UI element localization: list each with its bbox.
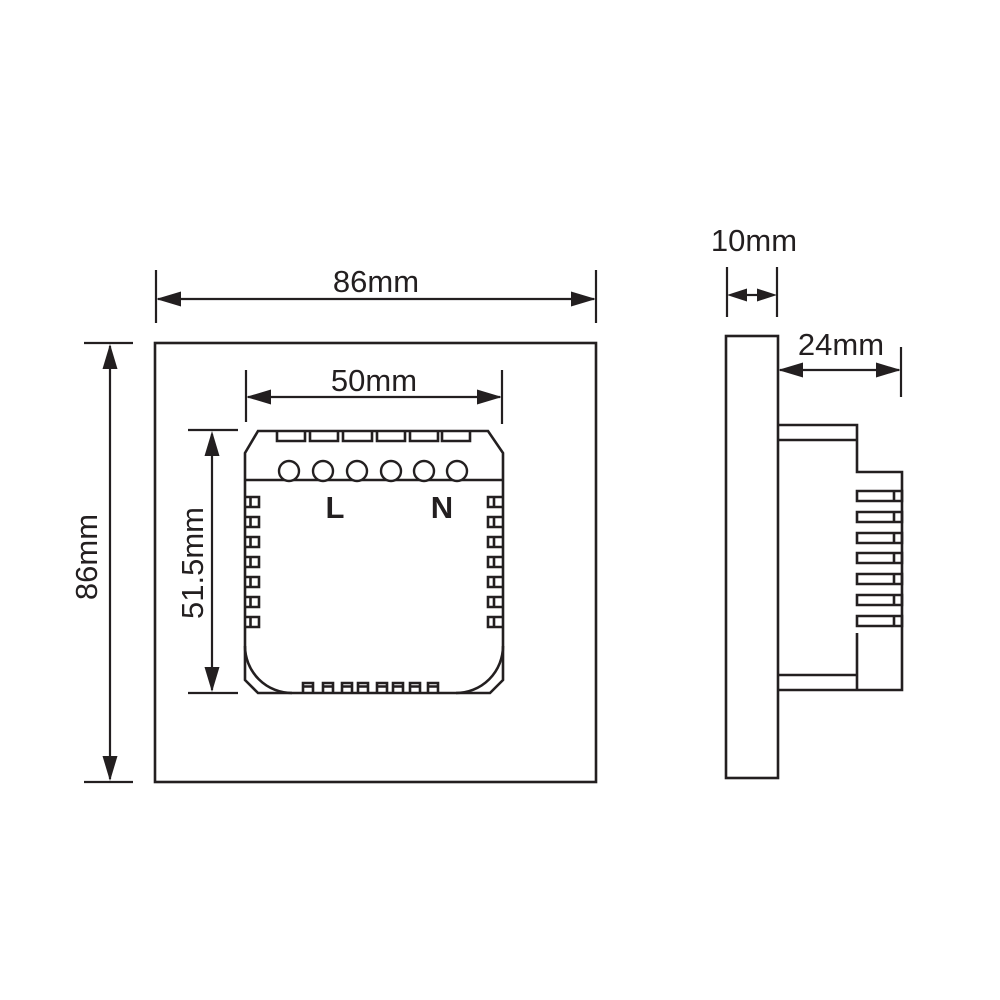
arrow-left-icon (727, 289, 747, 302)
module-height-label: 51.5mm (175, 507, 210, 619)
terminal-screw (279, 461, 299, 481)
arrow-right-icon (757, 289, 777, 302)
width-dimension-label: 86mm (333, 264, 419, 299)
dimension-module-height-51.5mm: 51.5mm (175, 430, 238, 693)
arrow-left-icon (156, 292, 181, 307)
side-view: 10mm 24mm (711, 223, 902, 778)
terminal-live-label: L (326, 490, 345, 525)
terminal-screw (313, 461, 333, 481)
left-claw-slots (245, 497, 259, 627)
front-plate-outline (155, 343, 596, 782)
terminal-neutral-label: N (431, 490, 453, 525)
module-depth-label: 24mm (798, 327, 884, 362)
module-width-label: 50mm (331, 363, 417, 398)
terminal-screws (279, 461, 467, 481)
wall-switch-dimension-drawing: 86mm 86mm 50mm (0, 0, 1000, 1000)
terminal-screw (381, 461, 401, 481)
height-dimension-label: 86mm (69, 514, 104, 600)
arrow-up-icon (205, 431, 220, 456)
terminal-screw (447, 461, 467, 481)
arrow-down-icon (205, 667, 220, 692)
right-claw-slots (488, 497, 503, 627)
dimension-height-86mm: 86mm (69, 343, 133, 782)
module-side-outline (778, 425, 902, 690)
arrow-right-icon (876, 363, 901, 378)
dimension-diagram: 86mm 86mm 50mm (0, 0, 1000, 1000)
top-clip-slots (277, 431, 470, 441)
dimension-depth-24mm: 24mm (778, 327, 901, 397)
terminal-screw (347, 461, 367, 481)
switch-module-side (778, 425, 902, 690)
dimension-thickness-10mm: 10mm (711, 223, 797, 317)
front-view: 86mm 86mm 50mm (69, 264, 596, 782)
bottom-corner-arcs (245, 646, 503, 693)
arrow-right-icon (477, 390, 502, 405)
side-claw-fins (857, 491, 902, 626)
dimension-width-86mm: 86mm (156, 264, 596, 323)
arrow-left-icon (778, 363, 803, 378)
side-plate-outline (726, 336, 778, 778)
arrow-down-icon (103, 756, 118, 781)
terminal-screw (414, 461, 434, 481)
arrow-up-icon (103, 344, 118, 369)
arrow-right-icon (571, 292, 596, 307)
bottom-clip-slots (303, 683, 438, 693)
extension-lines (727, 267, 777, 317)
dimension-module-width-50mm: 50mm (246, 363, 502, 424)
switch-module-front: L N (245, 431, 503, 693)
panel-thickness-label: 10mm (711, 223, 797, 258)
arrow-left-icon (246, 390, 271, 405)
